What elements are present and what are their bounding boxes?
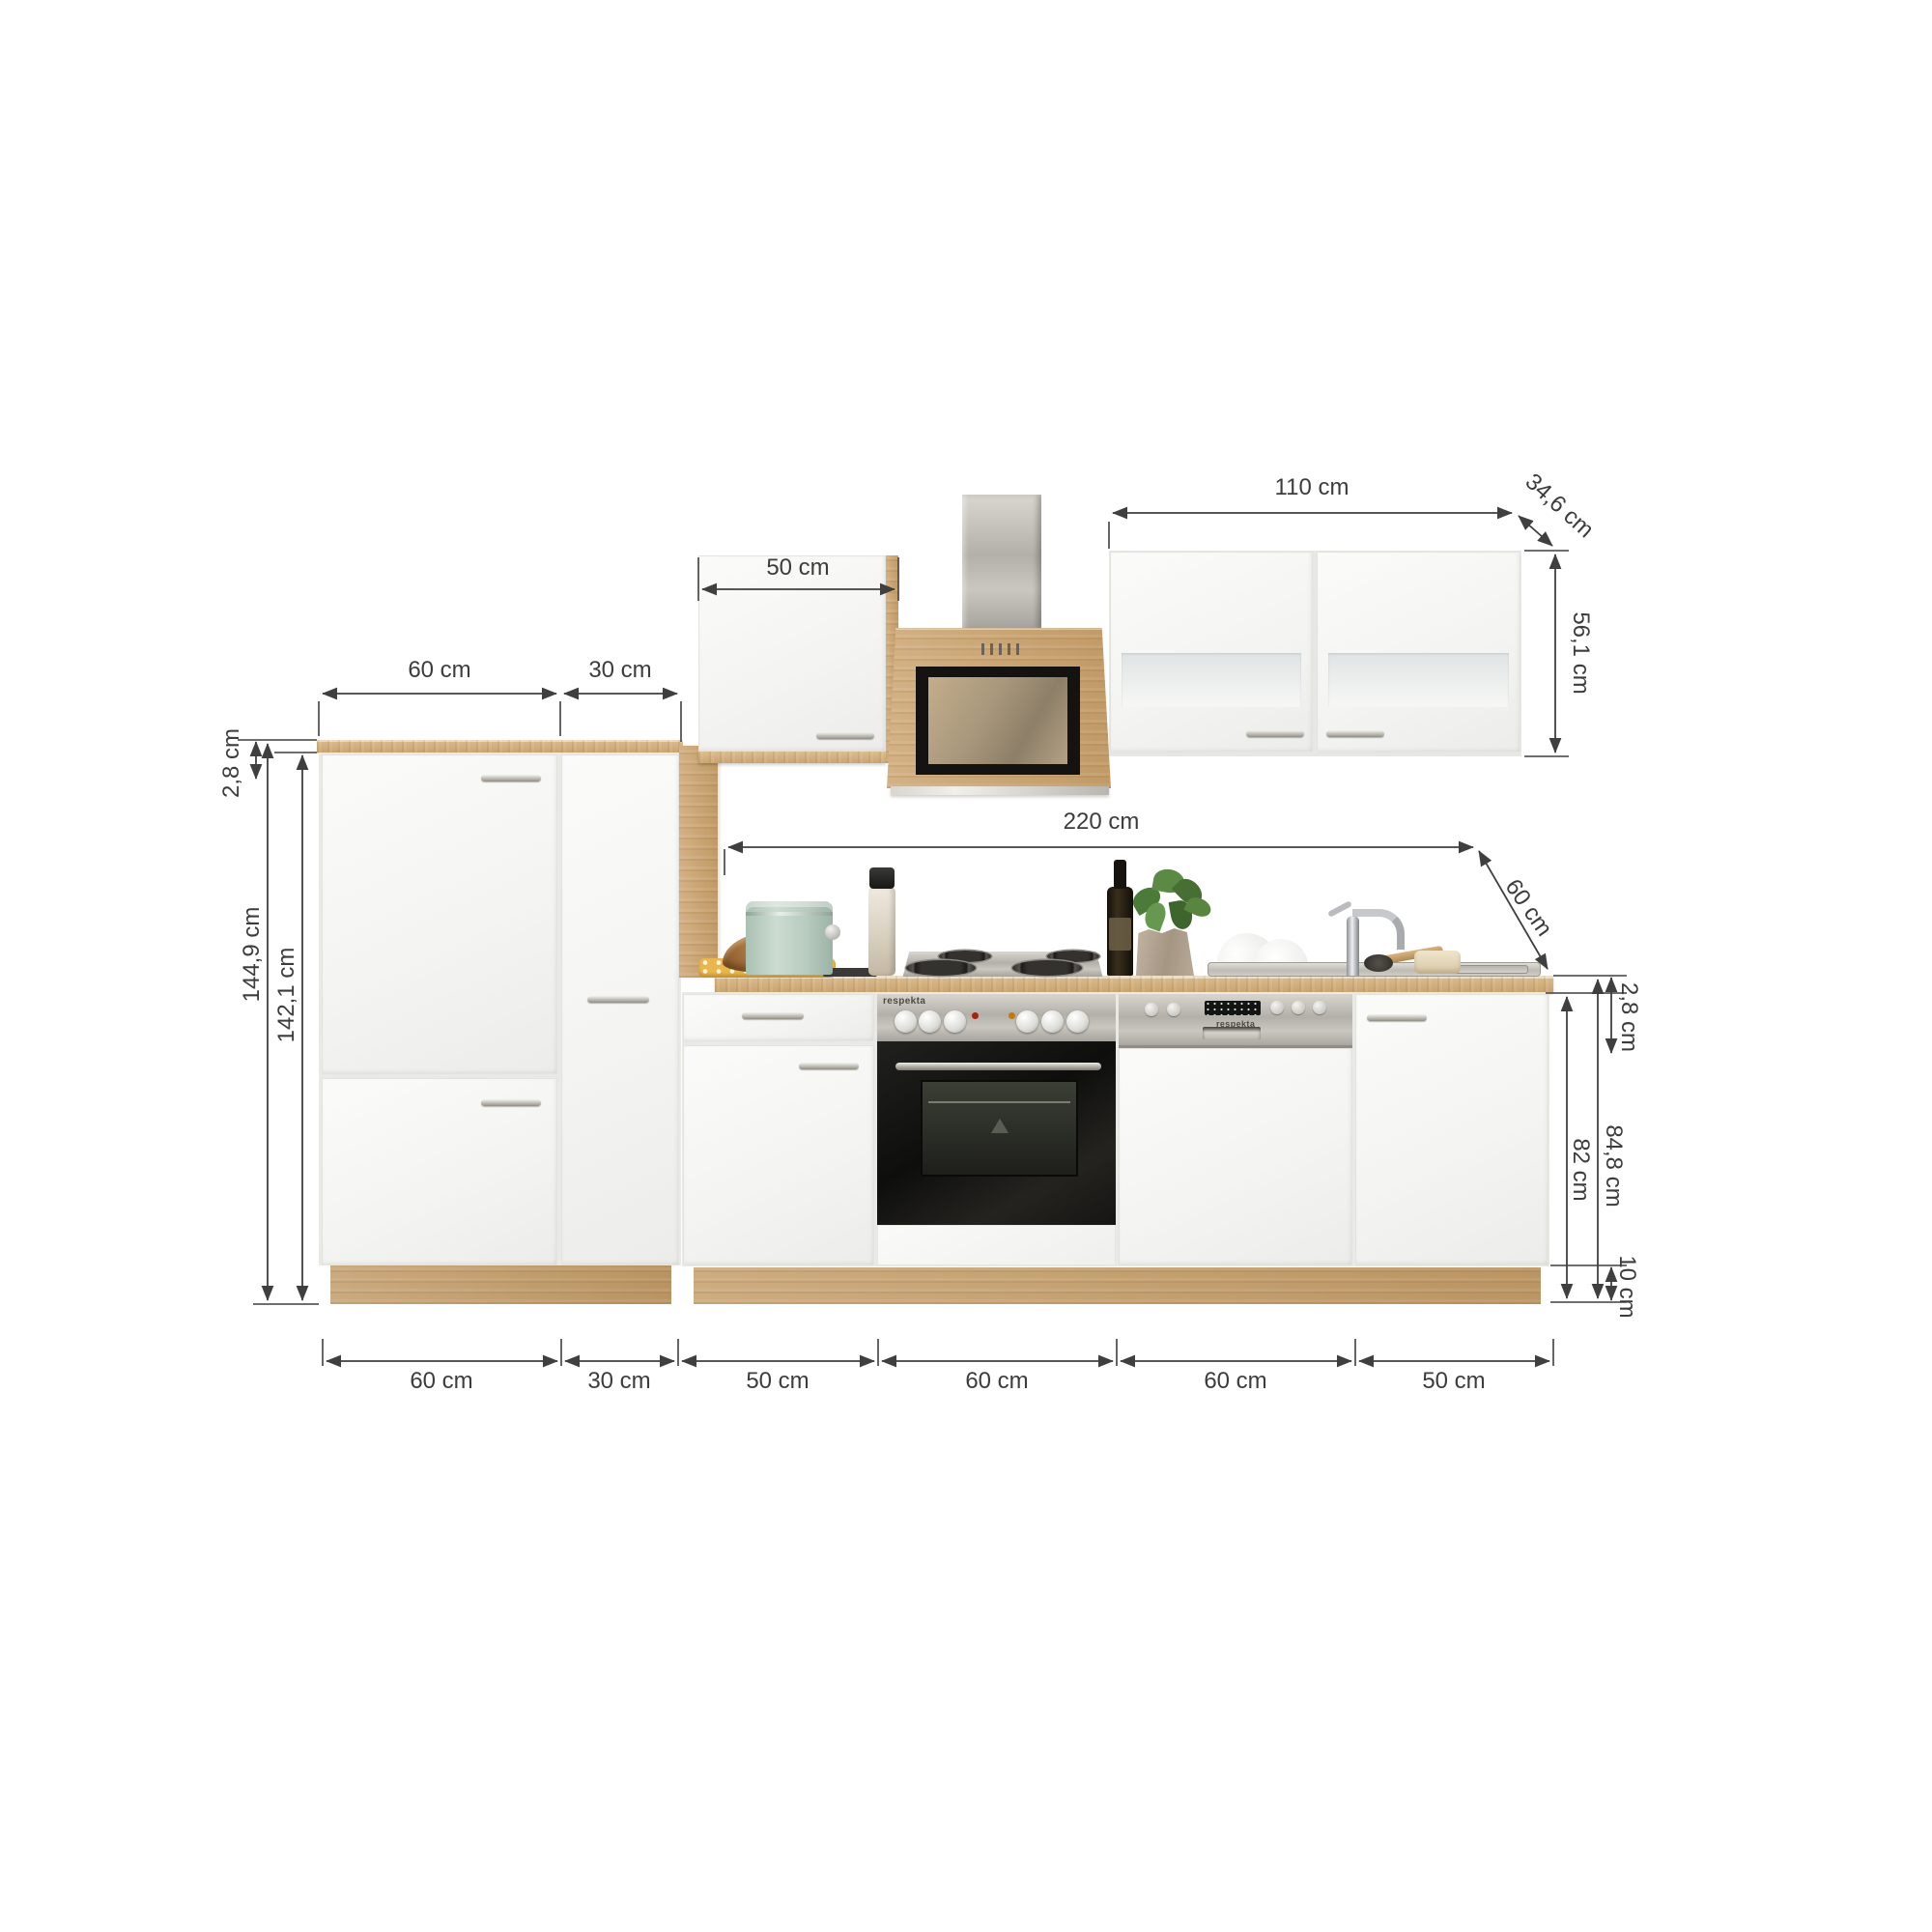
- label-tall-seg2: 30 cm: [588, 659, 651, 682]
- label-wall-right-width: 110 cm: [1275, 476, 1350, 499]
- label-wall-left-width: 50 cm: [766, 556, 829, 580]
- label-plinth-height: 10 cm: [1615, 1255, 1638, 1318]
- dim-line-wall-depth-34-6: [1519, 516, 1552, 546]
- product-dimension-diagram: respekta respekta: [0, 0, 1932, 1932]
- label-run-length: 220 cm: [1064, 810, 1140, 834]
- label-bottom-width-6: 50 cm: [1422, 1370, 1485, 1393]
- label-bottom-width-3: 50 cm: [746, 1370, 809, 1393]
- label-tall-total-height: 144,9 cm: [241, 907, 264, 1003]
- label-bottom-width-2: 30 cm: [587, 1370, 650, 1393]
- label-bottom-width-5: 60 cm: [1204, 1370, 1266, 1393]
- extension-tick-group: [238, 522, 1627, 1366]
- label-bottom-width-1: 60 cm: [410, 1370, 472, 1393]
- label-wall-height: 56,1 cm: [1569, 611, 1592, 694]
- label-bottom-width-4: 60 cm: [965, 1370, 1028, 1393]
- label-base-total-height: 84,8 cm: [1602, 1124, 1625, 1207]
- label-tall-body-height: 142,1 cm: [275, 948, 298, 1043]
- label-worktop-thickness: 2,8 cm: [1617, 982, 1640, 1052]
- label-base-body-height: 82 cm: [1569, 1138, 1592, 1201]
- label-tall-seg1: 60 cm: [408, 659, 470, 682]
- label-tall-worktop-thickness: 2,8 cm: [220, 728, 243, 798]
- dimension-line-group: [256, 513, 1611, 1361]
